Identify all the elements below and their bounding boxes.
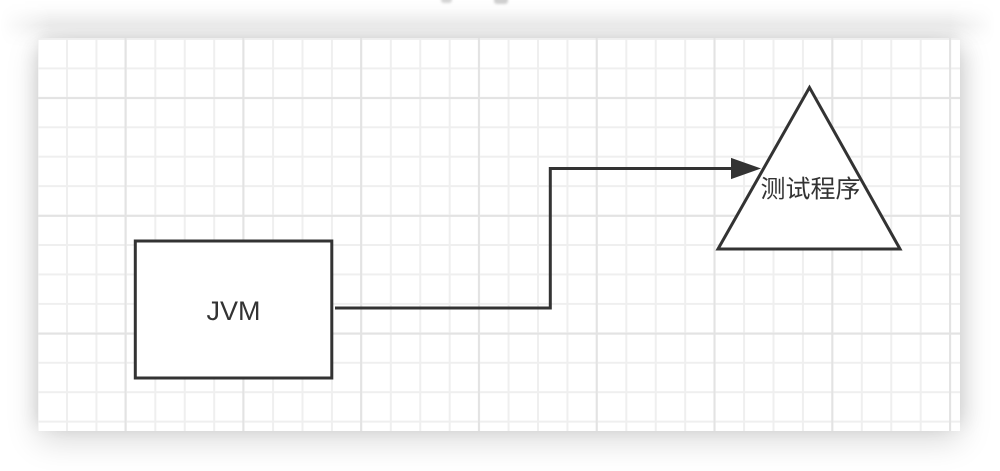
svg-text:JVM: JVM — [207, 296, 261, 326]
